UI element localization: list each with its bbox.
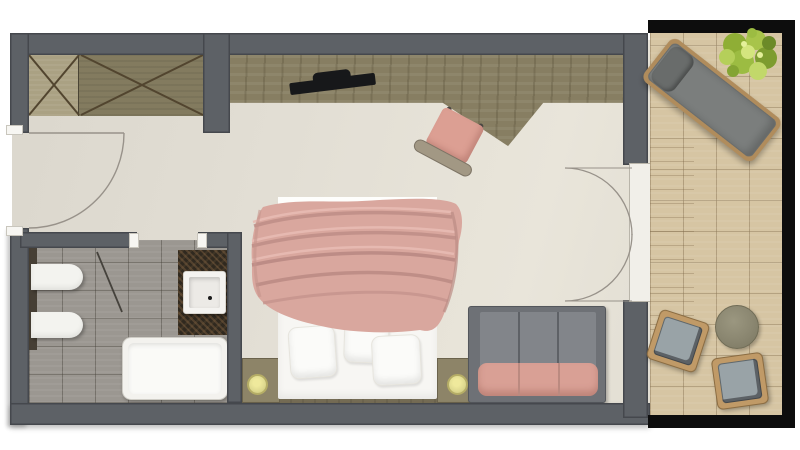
entry-door-jamb-bottom bbox=[7, 227, 22, 235]
wall-left-lower bbox=[10, 228, 29, 425]
wall-right-lower bbox=[623, 300, 648, 418]
wall-top bbox=[10, 33, 646, 55]
bathroom-door-jamb-left bbox=[130, 234, 138, 247]
wall-pier-closet bbox=[203, 33, 230, 133]
toilet bbox=[31, 264, 83, 290]
sofa-back-seam bbox=[518, 312, 520, 369]
entry-door-jamb-top bbox=[7, 126, 22, 134]
stool-2 bbox=[711, 352, 770, 411]
sofa-seat-cushion bbox=[478, 363, 598, 396]
shower-tray-inner bbox=[128, 343, 222, 394]
floor-plan bbox=[0, 0, 800, 450]
balcony-door-frame bbox=[629, 163, 651, 302]
washbasin bbox=[183, 271, 226, 314]
bathroom-door-jamb-right bbox=[198, 234, 206, 247]
potted-plant bbox=[705, 22, 785, 98]
bidet bbox=[31, 312, 83, 338]
pillow-3 bbox=[371, 334, 423, 386]
side-table bbox=[715, 305, 759, 349]
bathroom-partition-wall bbox=[227, 232, 242, 403]
washbasin-bowl bbox=[189, 277, 220, 308]
wall-bottom bbox=[10, 403, 650, 425]
sofa-back-seam bbox=[557, 312, 559, 369]
shower-tray bbox=[122, 337, 228, 400]
duvet bbox=[240, 190, 470, 340]
wardrobe bbox=[27, 53, 203, 115]
sofa-seat-seam bbox=[558, 363, 560, 396]
wardrobe-cross-lines bbox=[28, 54, 204, 116]
wall-right-upper bbox=[623, 33, 648, 165]
balcony-deck-strip bbox=[650, 135, 694, 330]
sofa bbox=[468, 306, 606, 403]
wall-left-upper bbox=[10, 33, 29, 133]
stool-cushion bbox=[717, 358, 762, 403]
balcony-railing-bottom bbox=[648, 415, 795, 428]
sofa-seat-seam bbox=[518, 363, 520, 396]
bedside-lamp-left bbox=[247, 374, 268, 395]
sofa-back-cushions bbox=[480, 312, 596, 369]
bedside-lamp-right bbox=[447, 374, 468, 395]
drain-dot bbox=[208, 296, 212, 300]
bathroom-wall-left bbox=[20, 232, 137, 248]
